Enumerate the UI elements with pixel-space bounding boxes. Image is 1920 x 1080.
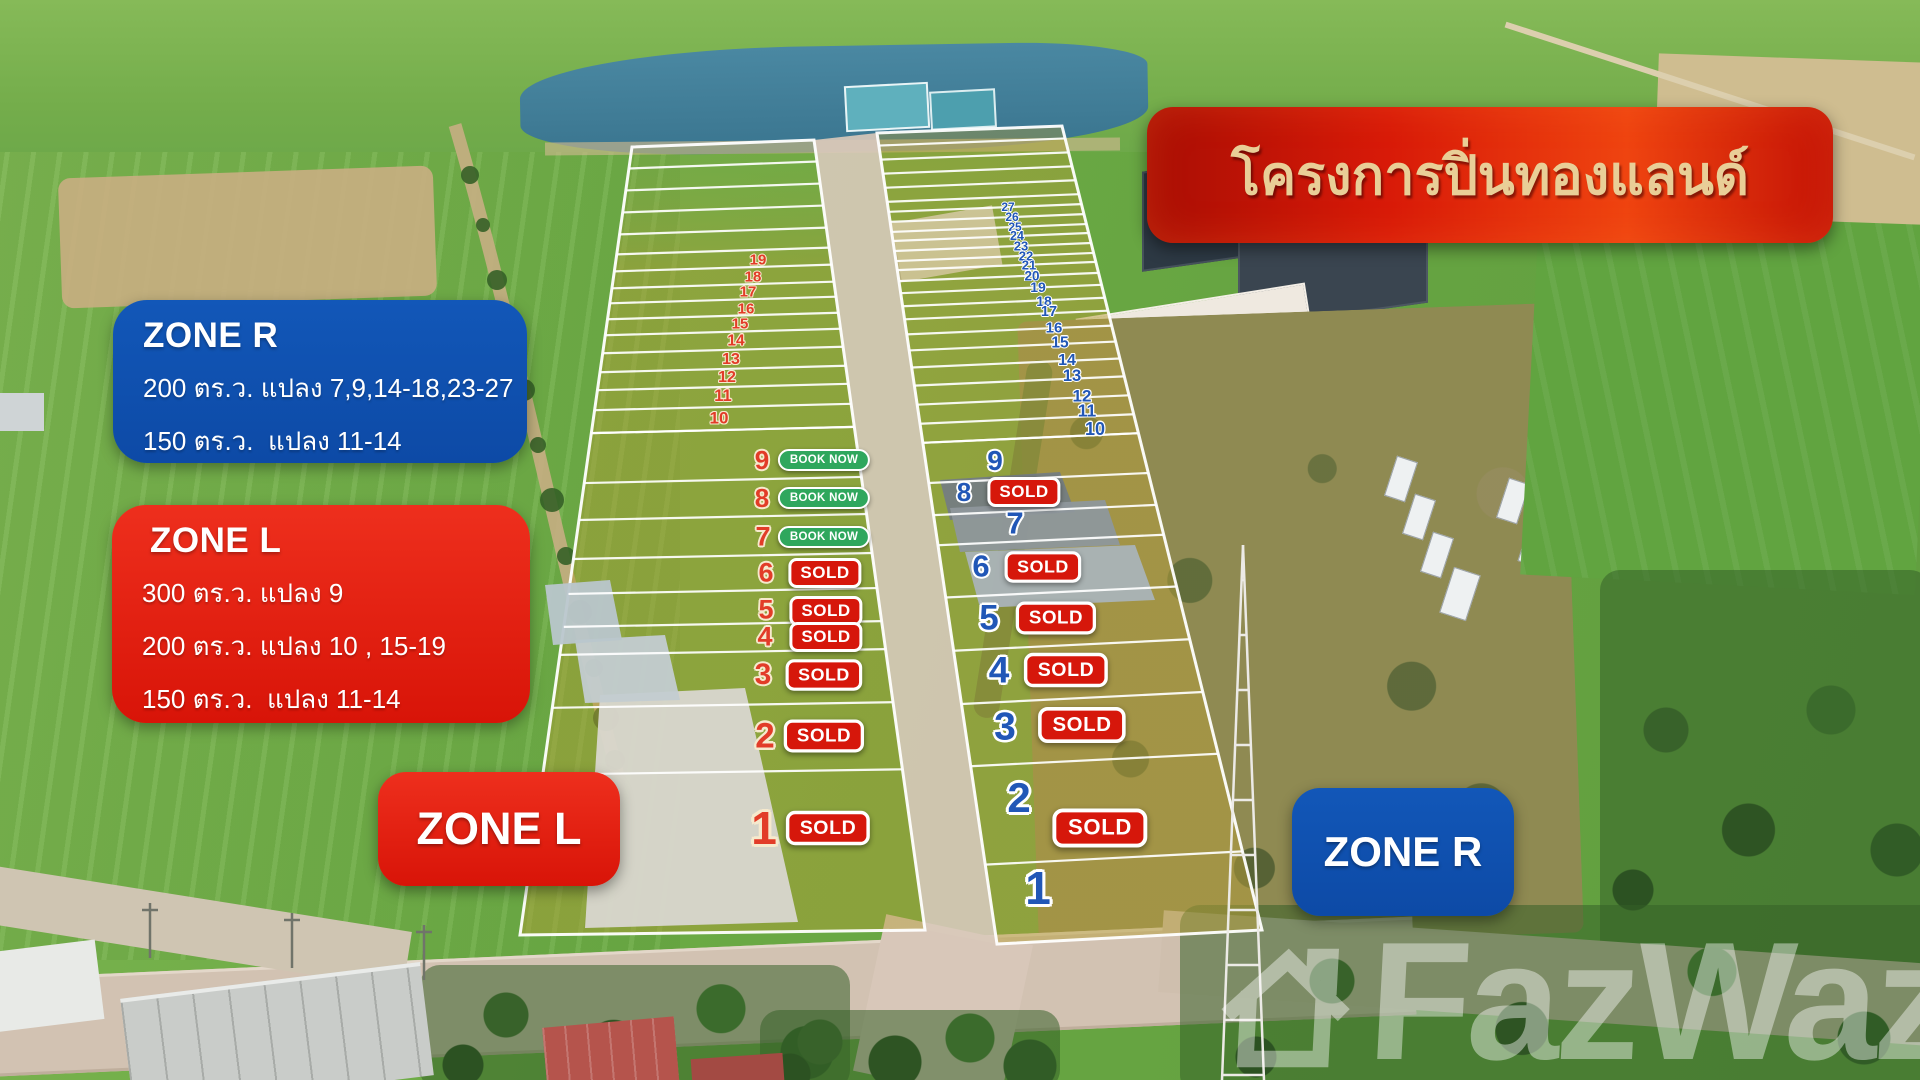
- book-now-badge[interactable]: BOOK NOW: [778, 526, 870, 548]
- plot-number-r-16: 16: [1046, 321, 1063, 336]
- plot-number-l-17: 17: [740, 285, 757, 300]
- plot-number-l-18: 18: [745, 270, 762, 285]
- plot-number-r-11: 11: [1078, 402, 1097, 420]
- plot-number-l-8: 8: [755, 485, 769, 511]
- fazwaz-watermark: FazWaz: [1206, 905, 1920, 1080]
- plot-number-l-19: 19: [750, 253, 767, 268]
- plot-number-r-4: 4: [989, 652, 1010, 689]
- sold-badge: SOLD: [1024, 653, 1108, 688]
- sold-badge: SOLD: [786, 659, 863, 691]
- plot-number-r-9: 9: [987, 447, 1003, 475]
- plot-number-r-13: 13: [1063, 368, 1081, 385]
- plot-number-l-14: 14: [727, 333, 744, 349]
- zone-r-info-line: 150 ตร.ว. แปลง 11-14: [143, 421, 527, 462]
- plot-number-l-6: 6: [758, 560, 773, 587]
- house-icon: [1207, 927, 1365, 1077]
- project-title: โครงการปิ่นทองแลนด์: [1231, 132, 1749, 218]
- plot-number-l-15: 15: [732, 317, 749, 332]
- plot-number-l-12: 12: [718, 370, 736, 386]
- plot-number-r-8: 8: [957, 479, 971, 505]
- plot-number-l-16: 16: [738, 302, 755, 317]
- plot-number-r-5: 5: [979, 601, 998, 636]
- sold-badge: SOLD: [1052, 809, 1147, 848]
- plot-number-r-15: 15: [1051, 335, 1068, 351]
- sold-badge: SOLD: [1005, 551, 1082, 583]
- plot-number-r-2: 2: [1007, 777, 1030, 819]
- plot-number-r-3: 3: [994, 708, 1016, 747]
- zone-r-info-box: ZONE R 200 ตร.ว. แปลง 7,9,14-18,23-27 15…: [113, 300, 527, 463]
- sold-badge: SOLD: [1038, 707, 1126, 743]
- sold-badge: SOLD: [784, 720, 865, 753]
- plot-number-l-1: 1: [751, 805, 777, 851]
- sold-badge: SOLD: [1016, 602, 1097, 635]
- zone-r-badge: ZONE R: [1292, 788, 1514, 916]
- plot-number-r-10: 10: [1085, 420, 1105, 438]
- zone-l-badge: ZONE L: [378, 772, 620, 886]
- zone-r-info-line: 200 ตร.ว. แปลง 7,9,14-18,23-27: [143, 368, 527, 409]
- plot-number-l-13: 13: [722, 352, 740, 368]
- plot-number-r-19: 19: [1030, 280, 1046, 294]
- plot-number-r-6: 6: [972, 551, 989, 582]
- plot-number-r-1: 1: [1025, 865, 1051, 911]
- plot-number-l-10: 10: [710, 410, 729, 427]
- plot-number-r-7: 7: [1006, 508, 1023, 539]
- plot-number-r-17: 17: [1041, 305, 1057, 320]
- sold-badge: SOLD: [789, 622, 862, 652]
- plot-number-l-4: 4: [757, 624, 772, 651]
- zone-r-info-title: ZONE R: [143, 316, 527, 356]
- sold-badge: SOLD: [987, 477, 1060, 507]
- zone-l-info-box: ZONE L 300 ตร.ว. แปลง 9 200 ตร.ว. แปลง 1…: [112, 505, 530, 723]
- plot-number-l-2: 2: [755, 719, 774, 754]
- sold-badge: SOLD: [788, 558, 861, 588]
- project-title-banner: โครงการปิ่นทองแลนด์: [1147, 107, 1833, 243]
- zone-l-info-line: 300 ตร.ว. แปลง 9: [142, 573, 530, 614]
- zone-l-info-line: 150 ตร.ว. แปลง 11-14: [142, 679, 530, 720]
- plot-number-l-9: 9: [755, 447, 769, 473]
- zone-l-info-title: ZONE L: [142, 521, 530, 561]
- book-now-badge[interactable]: BOOK NOW: [778, 487, 870, 509]
- plot-number-l-7: 7: [755, 524, 770, 551]
- zone-l-info-line: 200 ตร.ว. แปลง 10 , 15-19: [142, 626, 530, 667]
- book-now-badge[interactable]: BOOK NOW: [778, 449, 870, 471]
- watermark-text: FazWaz: [1364, 905, 1920, 1080]
- plot-number-l-3: 3: [755, 660, 772, 690]
- plot-number-l-11: 11: [714, 388, 731, 405]
- plot-number-l-5: 5: [758, 597, 773, 624]
- project-map: 191817161514131211109BOOK NOW8BOOK NOW7B…: [0, 0, 1920, 1080]
- sold-badge: SOLD: [786, 811, 870, 846]
